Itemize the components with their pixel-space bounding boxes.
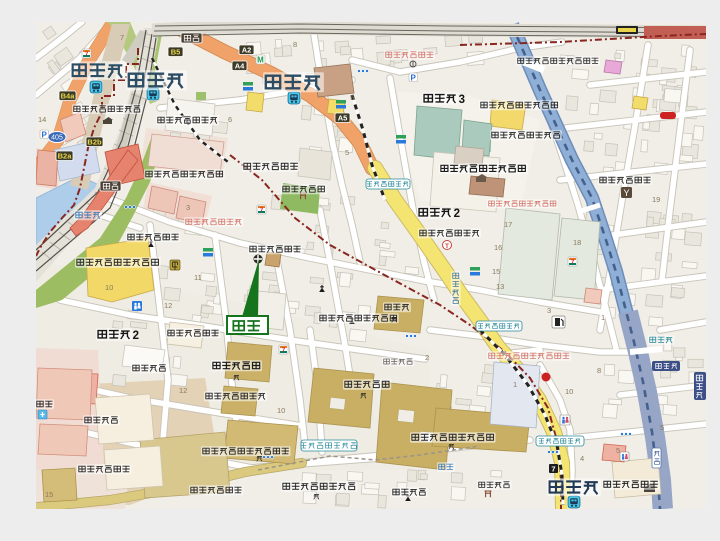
svg-text:2: 2 <box>133 330 139 342</box>
svg-text:5: 5 <box>616 446 620 455</box>
svg-text:M: M <box>257 56 264 65</box>
svg-text:15: 15 <box>492 267 500 276</box>
svg-text:A2: A2 <box>242 46 252 55</box>
svg-text:13: 13 <box>496 282 504 291</box>
svg-text:3: 3 <box>547 306 551 315</box>
svg-text:5: 5 <box>345 148 349 157</box>
svg-text:A4: A4 <box>235 62 245 71</box>
svg-text:5: 5 <box>350 93 354 102</box>
svg-text:B2a: B2a <box>58 152 73 161</box>
svg-text:16: 16 <box>494 243 502 252</box>
svg-text:7: 7 <box>551 465 555 474</box>
svg-text:T: T <box>445 243 449 250</box>
svg-text:2: 2 <box>454 208 460 220</box>
svg-text:P: P <box>411 73 417 82</box>
svg-text:10: 10 <box>105 283 113 292</box>
svg-text:12: 12 <box>179 386 187 395</box>
svg-text:B5: B5 <box>171 48 181 57</box>
svg-text:12: 12 <box>164 301 172 310</box>
svg-text:405: 405 <box>51 135 63 142</box>
svg-text:1: 1 <box>601 313 605 322</box>
svg-text:5: 5 <box>660 423 664 432</box>
svg-text:17: 17 <box>504 220 512 229</box>
svg-text:Y: Y <box>623 188 629 198</box>
svg-text:10: 10 <box>565 387 573 396</box>
svg-text:4: 4 <box>580 454 584 463</box>
svg-text:2: 2 <box>425 353 429 362</box>
svg-text:15: 15 <box>45 490 53 499</box>
svg-text:1: 1 <box>513 380 517 389</box>
svg-text:11: 11 <box>194 273 202 282</box>
svg-text:A5: A5 <box>338 114 348 123</box>
svg-text:B2b: B2b <box>87 138 102 147</box>
svg-text:3: 3 <box>186 203 190 212</box>
svg-text:8: 8 <box>597 366 601 375</box>
svg-text:10: 10 <box>277 406 285 415</box>
svg-text:3: 3 <box>459 94 465 106</box>
svg-text:P: P <box>42 130 48 139</box>
svg-text:7: 7 <box>120 33 124 42</box>
svg-text:18: 18 <box>573 238 581 247</box>
svg-text:8: 8 <box>293 40 297 49</box>
svg-text:19: 19 <box>652 195 660 204</box>
svg-text:14: 14 <box>38 115 46 124</box>
svg-text:6: 6 <box>228 115 232 124</box>
svg-text:B4a: B4a <box>61 92 76 101</box>
